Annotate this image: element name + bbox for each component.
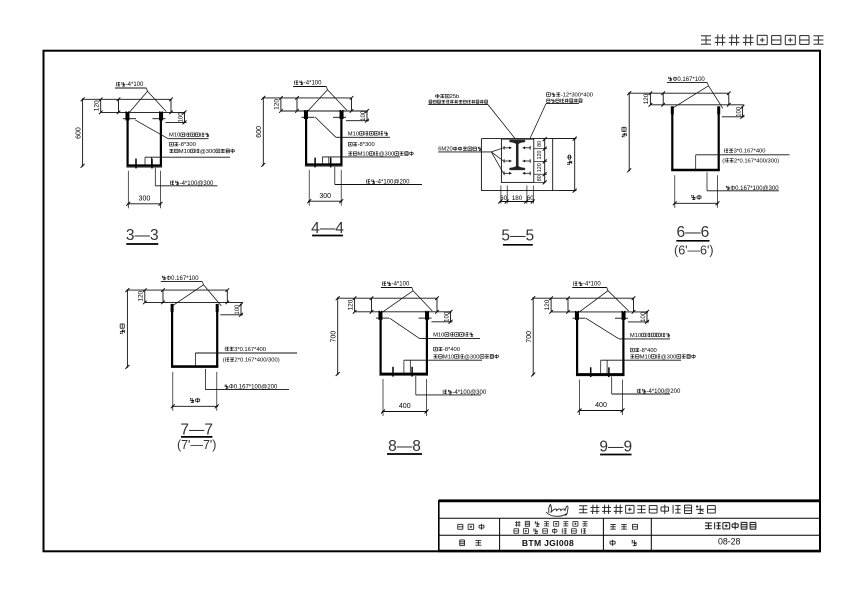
svg-text:9—9: 9—9 [599,439,632,456]
svg-text:300: 300 [319,193,331,200]
svg-text:-4*100@300: -4*100@300 [452,390,486,396]
svg-text:@300: @300 [661,354,677,360]
svg-text:600: 600 [75,127,82,139]
svg-text:25b: 25b [450,94,460,100]
svg-text:5—5: 5—5 [501,228,534,245]
svg-text:-8*400: -8*400 [443,347,460,353]
svg-text:Φ0.167*100@300: Φ0.167*100@300 [730,186,779,192]
svg-text:-4*100: -4*100 [126,82,144,88]
svg-text:08-28: 08-28 [718,537,741,547]
svg-text:400: 400 [595,402,607,409]
svg-text:100: 100 [179,112,185,123]
svg-text:-4*100@300: -4*100@300 [180,181,214,187]
svg-text:120: 120 [94,100,101,111]
svg-text:@300: @300 [464,354,480,360]
svg-text:80: 80 [537,175,543,181]
svg-text:120: 120 [537,163,543,172]
svg-text:100: 100 [361,110,367,121]
svg-text:100: 100 [641,311,647,322]
svg-text:2*0.167*400/300): 2*0.167*400/300) [734,158,779,164]
svg-text:180: 180 [512,195,523,202]
svg-text:M10: M10 [640,354,651,360]
svg-text:-8*400: -8*400 [640,348,657,354]
svg-text:100: 100 [737,106,743,117]
svg-text:-4*100: -4*100 [392,282,410,288]
svg-text:M10: M10 [443,354,454,360]
svg-text:M10: M10 [348,131,359,137]
svg-text:3*0.167*400: 3*0.167*400 [734,149,766,155]
svg-text:60: 60 [500,195,507,202]
svg-text:80: 80 [537,141,543,147]
svg-text:(: ( [223,358,225,364]
svg-text:-4*100: -4*100 [304,81,322,87]
svg-text:600: 600 [256,126,263,138]
svg-text:6—6: 6—6 [677,224,710,241]
svg-text:2*0.167*400/300): 2*0.167*400/300) [235,358,280,364]
svg-text:8—8: 8—8 [388,438,421,455]
svg-text:60: 60 [527,195,534,202]
svg-text:M10: M10 [179,149,190,155]
svg-text:@300: @300 [200,149,216,155]
svg-text:(: ( [722,158,724,164]
svg-text:M10: M10 [169,133,180,139]
svg-text:700: 700 [526,331,533,343]
svg-text:Φ0.167*100: Φ0.167*100 [166,276,199,282]
svg-text:Φ0.167*100@200: Φ0.167*100@200 [229,385,278,391]
svg-text:120: 120 [274,99,281,110]
svg-text:120: 120 [138,290,145,301]
svg-text:(6'—6'): (6'—6') [674,244,714,258]
svg-text:400: 400 [399,403,411,410]
svg-text:M10: M10 [630,333,641,339]
svg-text:3—3: 3—3 [126,227,159,244]
svg-text:120: 120 [537,151,543,160]
svg-text:M10: M10 [433,332,444,338]
svg-text:-12*300*400: -12*300*400 [561,93,593,99]
svg-text:120: 120 [643,93,650,104]
svg-text:-4*100: -4*100 [583,282,601,288]
svg-text:-8*300: -8*300 [179,142,196,148]
svg-text:Φ0.167*100: Φ0.167*100 [673,77,706,83]
svg-text:-8*300: -8*300 [358,142,375,148]
svg-text:300: 300 [139,195,151,202]
svg-text:3*0.167*400: 3*0.167*400 [234,347,266,353]
svg-text:(7'—7'): (7'—7') [177,438,217,452]
svg-text:120: 120 [347,299,354,310]
svg-text:BTM JGI008: BTM JGI008 [522,538,574,548]
svg-text:-4*100@200: -4*100@200 [647,389,681,395]
svg-text:120: 120 [544,299,551,310]
svg-text:-4*100@200: -4*100@200 [376,180,410,186]
svg-text:700: 700 [331,331,338,343]
svg-text:100: 100 [235,304,241,315]
svg-text:4—4: 4—4 [311,220,344,237]
svg-text:100: 100 [445,311,451,322]
